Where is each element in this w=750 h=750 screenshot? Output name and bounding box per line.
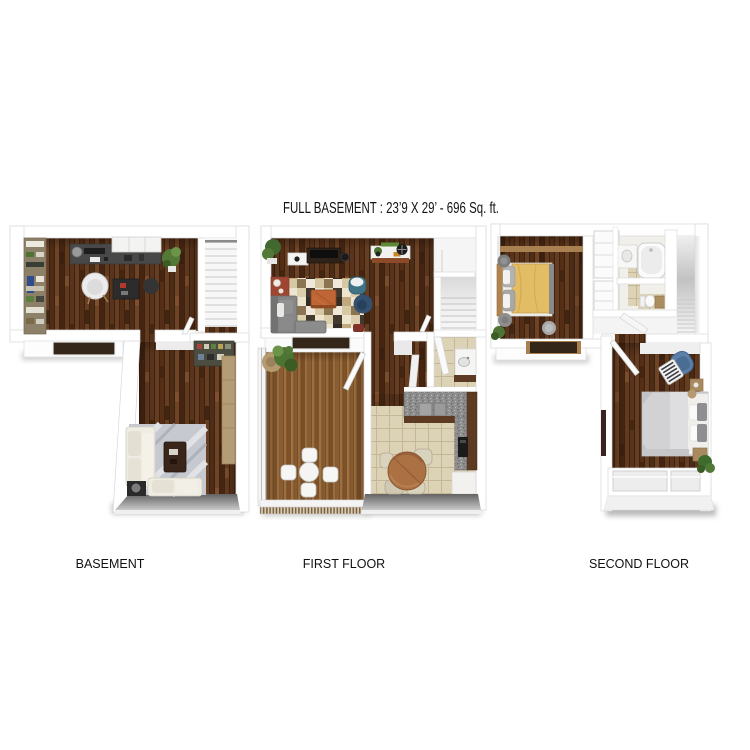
svg-text:BASEMENT: BASEMENT — [76, 557, 145, 571]
svg-text:FULL BASEMENT : 23’9 X 29’ - 6: FULL BASEMENT : 23’9 X 29’ - 696 Sq. ft. — [283, 200, 499, 217]
svg-text:SECOND FLOOR: SECOND FLOOR — [589, 557, 689, 571]
svg-text:FIRST FLOOR: FIRST FLOOR — [303, 557, 385, 571]
